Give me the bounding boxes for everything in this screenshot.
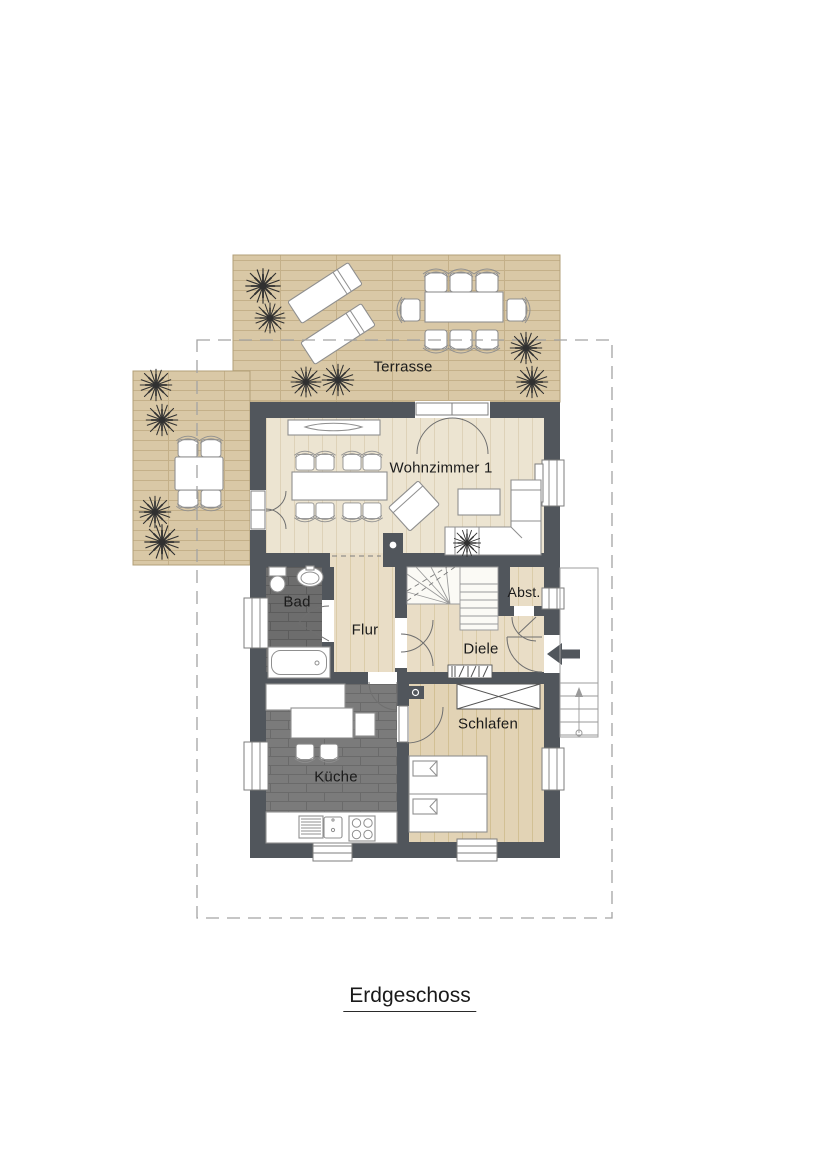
toilet [269, 567, 286, 592]
kitchen-sink [324, 817, 342, 838]
double-bed [409, 756, 487, 832]
bathtub [268, 647, 330, 678]
utility-box [407, 686, 424, 699]
schlafen-window-right [542, 748, 564, 790]
room-label-wohnzimmer: Wohnzimmer 1 [390, 460, 493, 477]
sideboard [288, 420, 380, 435]
room-label-kueche: Küche [314, 769, 358, 786]
kueche-window-left [244, 742, 268, 790]
room-label-schlafen: Schlafen [458, 716, 518, 733]
floorplan-page: Terrasse Wohnzimmer 1 Bad Flur Abst. Die… [0, 0, 814, 1152]
terrace-deck-top [233, 255, 560, 402]
coffee-table [458, 489, 500, 515]
room-label-abstellraum: Abst. [508, 584, 541, 600]
schlafen-window-bottom [457, 839, 497, 861]
room-label-diele: Diele [463, 641, 498, 658]
drainboard [299, 816, 323, 838]
wardrobe [457, 684, 540, 709]
stove-cooktop [349, 816, 375, 841]
bad-window [244, 598, 268, 648]
room-label-bad: Bad [283, 594, 310, 611]
floorplan-canvas [0, 0, 814, 1152]
flur-floor [334, 553, 395, 672]
floor-title: Erdgeschoss [343, 984, 476, 1012]
wood-stove [383, 533, 403, 555]
room-label-terrasse: Terrasse [373, 359, 432, 376]
abstellraum-window [542, 588, 564, 609]
room-label-flur: Flur [352, 622, 379, 639]
shoe-bench [448, 665, 492, 678]
